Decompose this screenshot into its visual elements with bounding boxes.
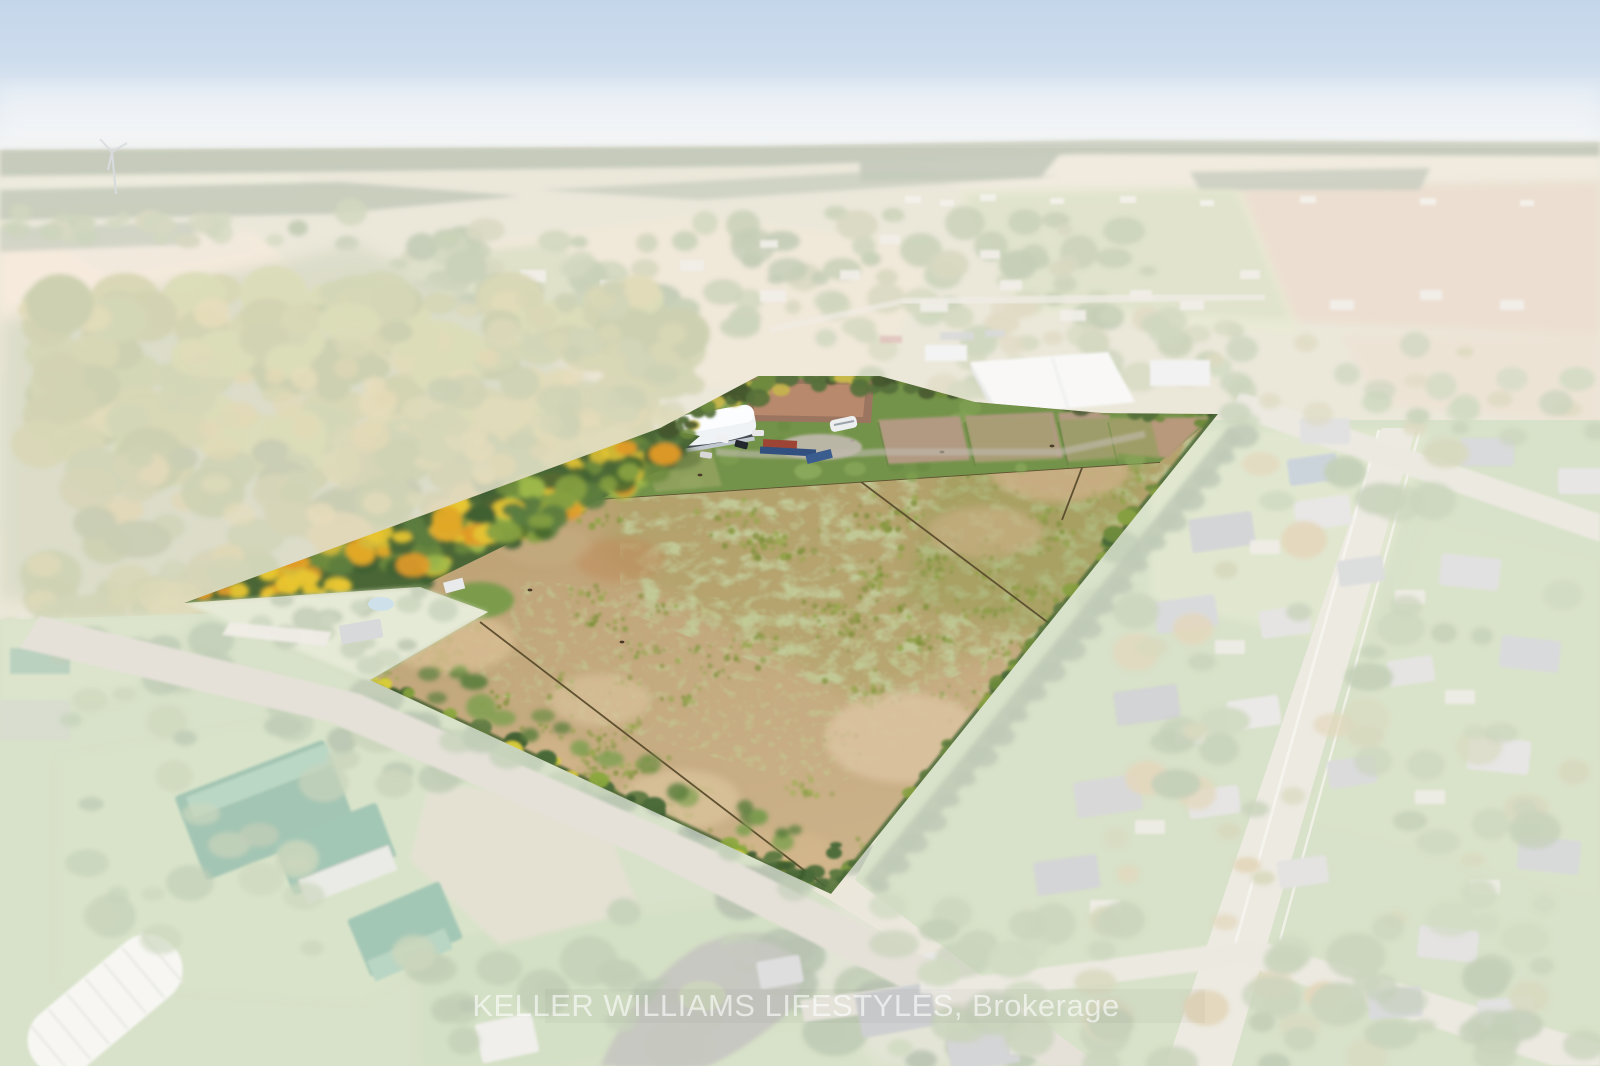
svg-text:KELLER WILLIAMS LIFESTYLES, Br: KELLER WILLIAMS LIFESTYLES, Brokerage	[472, 988, 1119, 1023]
